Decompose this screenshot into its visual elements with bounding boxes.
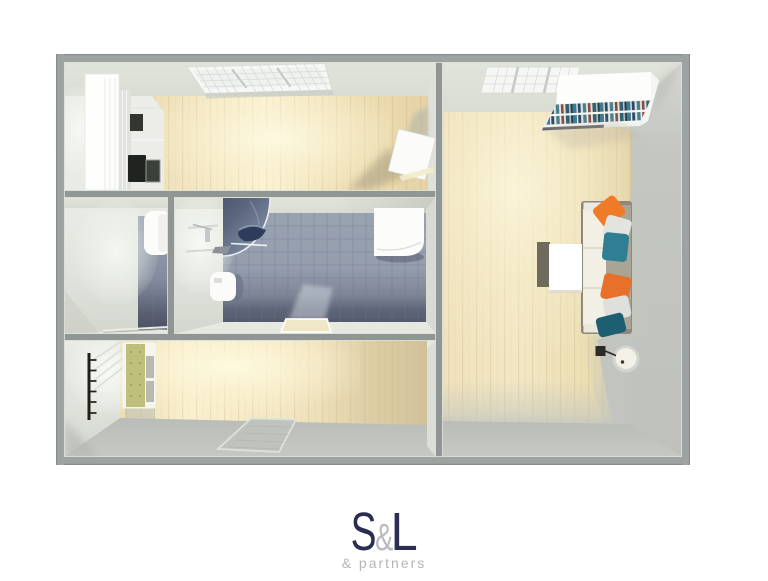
svg-text:L: L	[391, 501, 418, 562]
svg-text:S: S	[351, 501, 377, 562]
svg-text:& partners: & partners	[342, 555, 427, 571]
svg-text:&: &	[375, 517, 393, 559]
